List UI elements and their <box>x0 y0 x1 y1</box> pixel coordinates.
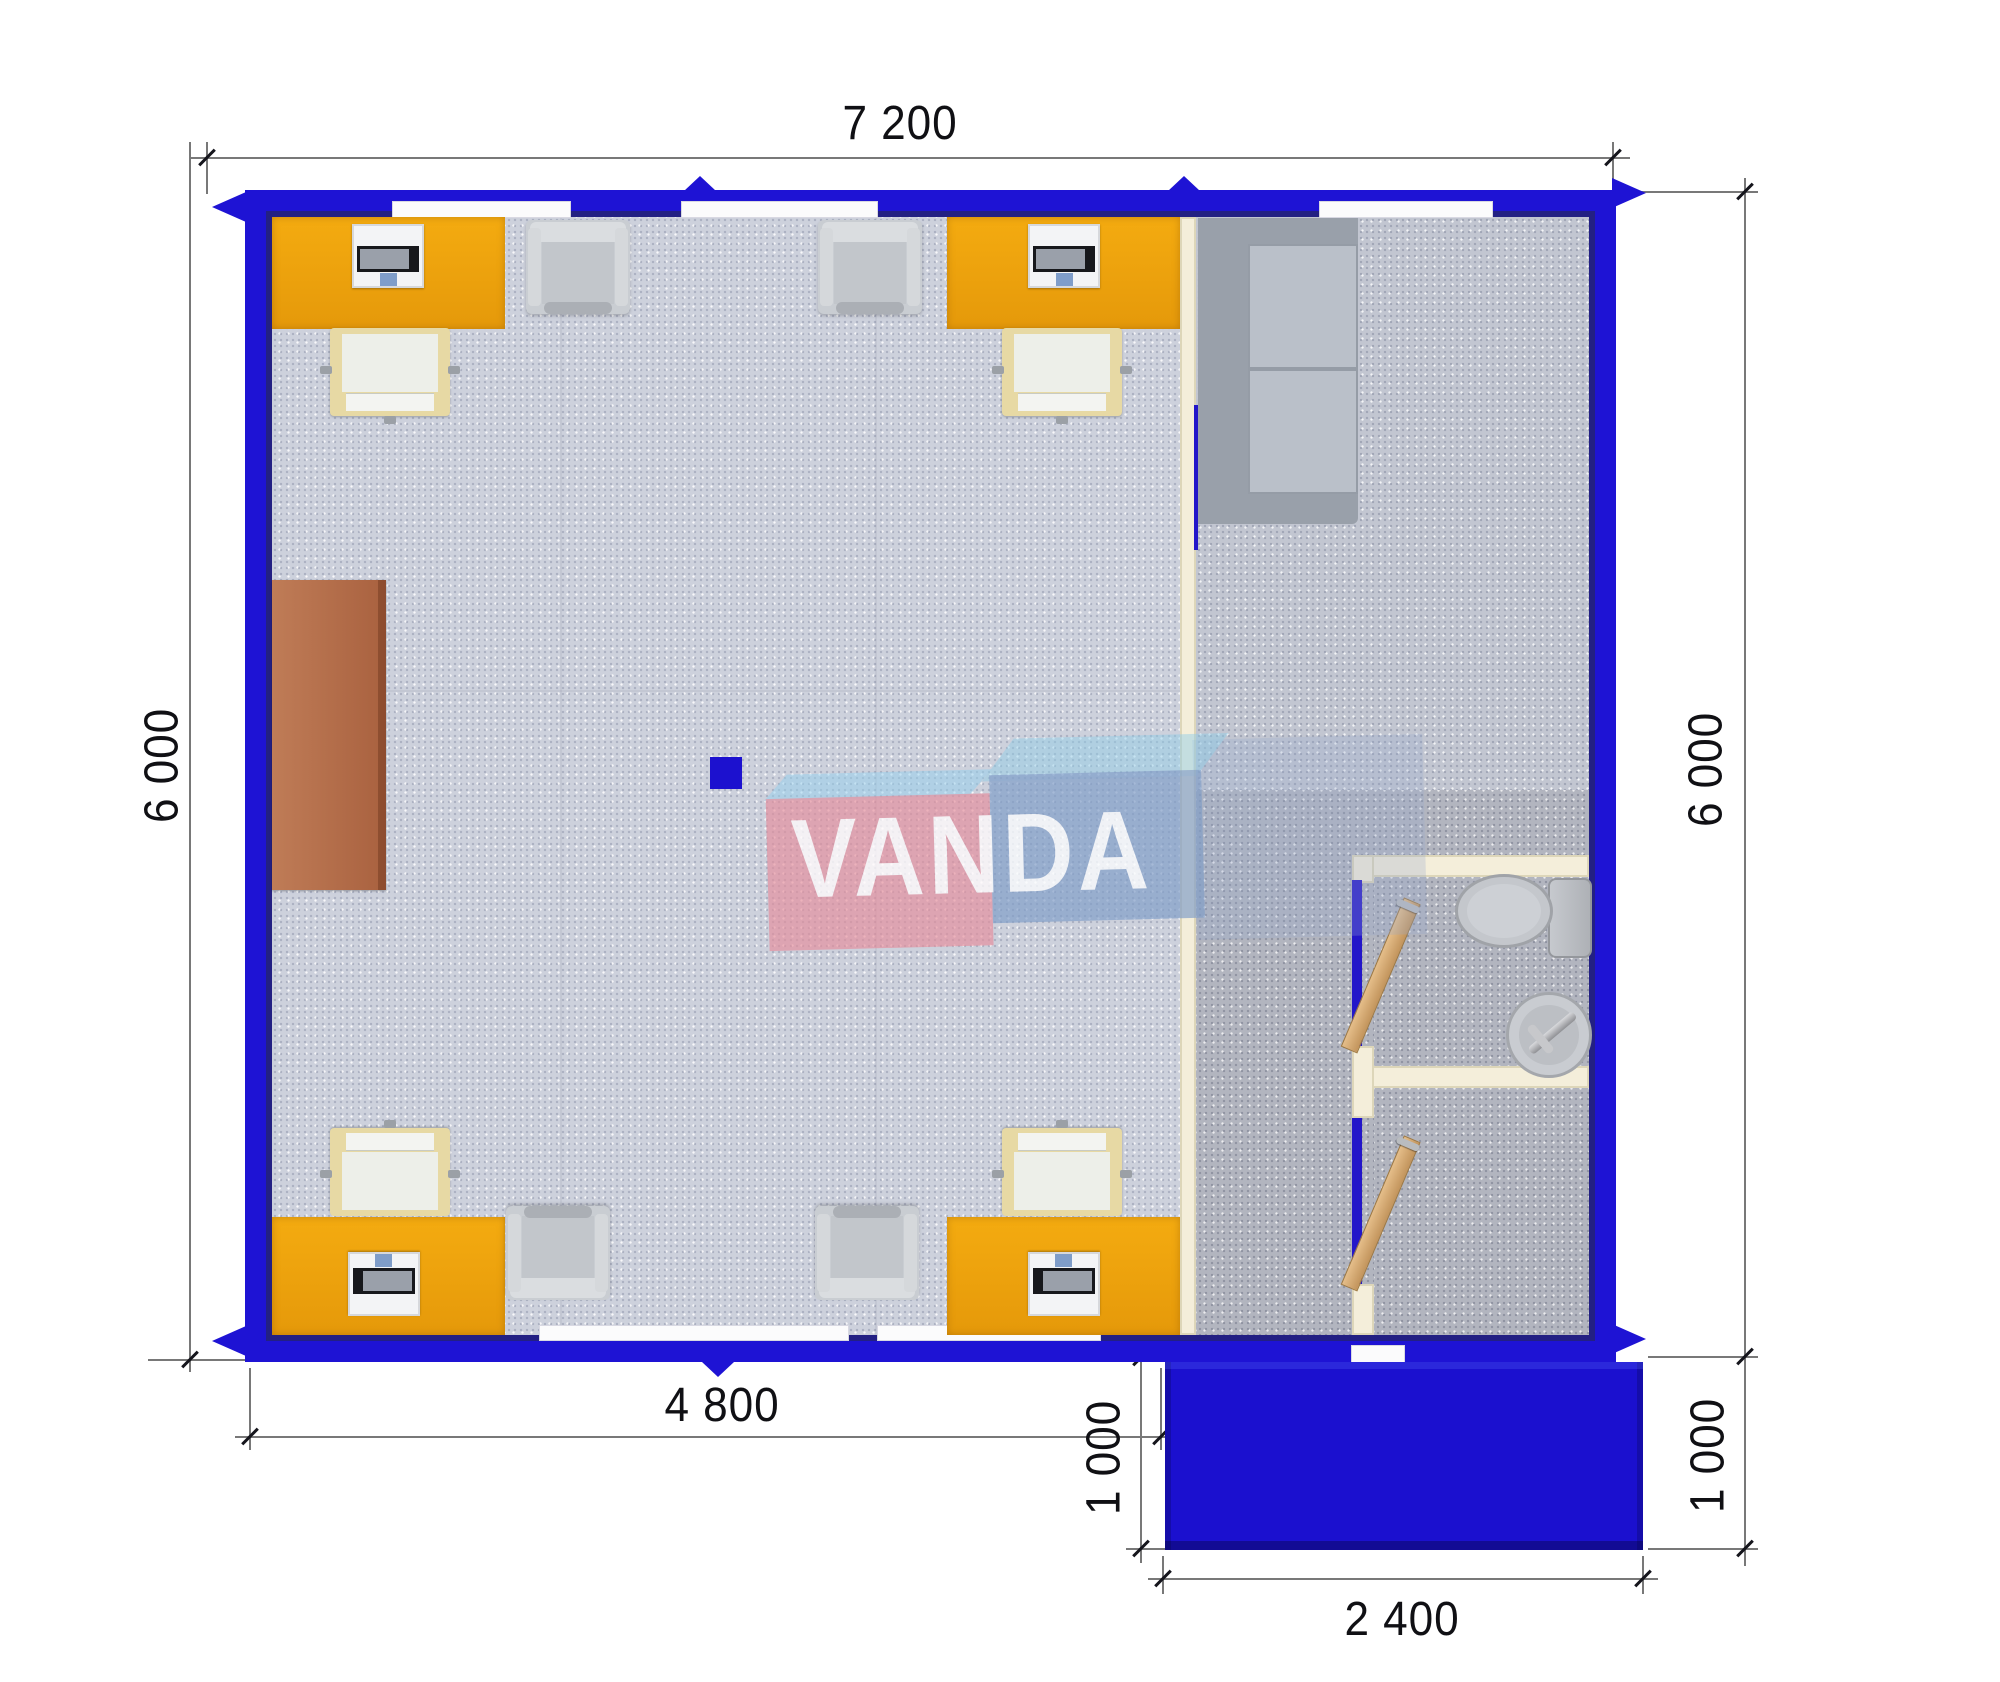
window-top-2 <box>682 202 877 217</box>
sofa-armrest-bottom <box>1210 494 1358 524</box>
visitor-armchair <box>506 1206 610 1300</box>
dim-label-top: 7 200 <box>799 96 1001 151</box>
dim-label-right: 6 000 <box>1679 668 1734 870</box>
module-joint-marker-icon <box>1168 176 1200 191</box>
wc-wall-left-seg <box>1352 1046 1374 1118</box>
floor-seam <box>272 690 1180 692</box>
computer-icon <box>352 224 424 288</box>
entrance-porch <box>1165 1362 1643 1550</box>
dim-ext-left-bottom <box>148 1359 248 1361</box>
toilet-icon <box>1455 874 1553 948</box>
sideboard <box>272 580 386 890</box>
task-chair <box>330 328 450 416</box>
corner-marker-icon <box>212 1326 246 1356</box>
dim-label-porch-left: 1 000 <box>1077 1356 1132 1558</box>
module-joint-marker-icon <box>684 176 716 191</box>
dim-line-porch-left <box>1140 1348 1142 1563</box>
dim-ext-top-left <box>206 142 208 194</box>
task-chair <box>1002 1128 1122 1216</box>
sofa-seat-cushion <box>1248 369 1358 494</box>
computer-icon <box>1028 1252 1100 1316</box>
floor-seam <box>560 217 562 1335</box>
task-chair <box>330 1128 450 1216</box>
dim-ext-porch-bl <box>1126 1548 1168 1550</box>
task-chair <box>1002 328 1122 416</box>
dim-label-bottom-inner: 4 800 <box>621 1378 823 1433</box>
window-top-1 <box>393 202 570 217</box>
sofa-backrest <box>1198 218 1248 524</box>
computer-icon <box>1028 224 1100 288</box>
dim-line-porch-bottom <box>1148 1578 1658 1580</box>
computer-icon <box>348 1252 420 1316</box>
wc-wall-left-seg <box>1352 855 1374 883</box>
floor-seam <box>875 217 877 1335</box>
module-joint-marker-icon <box>702 1362 734 1377</box>
structural-column <box>710 757 742 789</box>
visitor-armchair <box>815 1206 919 1300</box>
corner-marker-icon <box>1612 178 1646 208</box>
dim-line-bottom-inner <box>235 1436 1185 1438</box>
window-top-3 <box>1320 202 1492 217</box>
storeroom-floor <box>1374 1088 1589 1335</box>
entrance-door-threshold <box>1352 1346 1404 1362</box>
wc-wall-left-seg <box>1352 1284 1374 1335</box>
dim-line-top <box>190 157 1630 159</box>
sofa-seat-cushion <box>1248 244 1358 369</box>
floor-plan-page: 7 200 6 000 6 000 1 000 4 800 1 000 2 40… <box>0 0 2000 1682</box>
toilet-tank <box>1548 878 1592 958</box>
dim-label-porch-bottom: 2 400 <box>1301 1592 1503 1647</box>
dim-label-left: 6 000 <box>135 664 190 866</box>
wc-wall-top <box>1352 855 1589 877</box>
window-bottom-1 <box>540 1326 848 1340</box>
dim-label-porch-right: 1 000 <box>1681 1354 1736 1556</box>
corner-marker-icon <box>212 192 246 222</box>
partition-wall <box>1180 217 1196 1335</box>
corner-marker-icon <box>1612 1324 1646 1354</box>
visitor-armchair <box>526 220 630 314</box>
visitor-armchair <box>818 220 922 314</box>
